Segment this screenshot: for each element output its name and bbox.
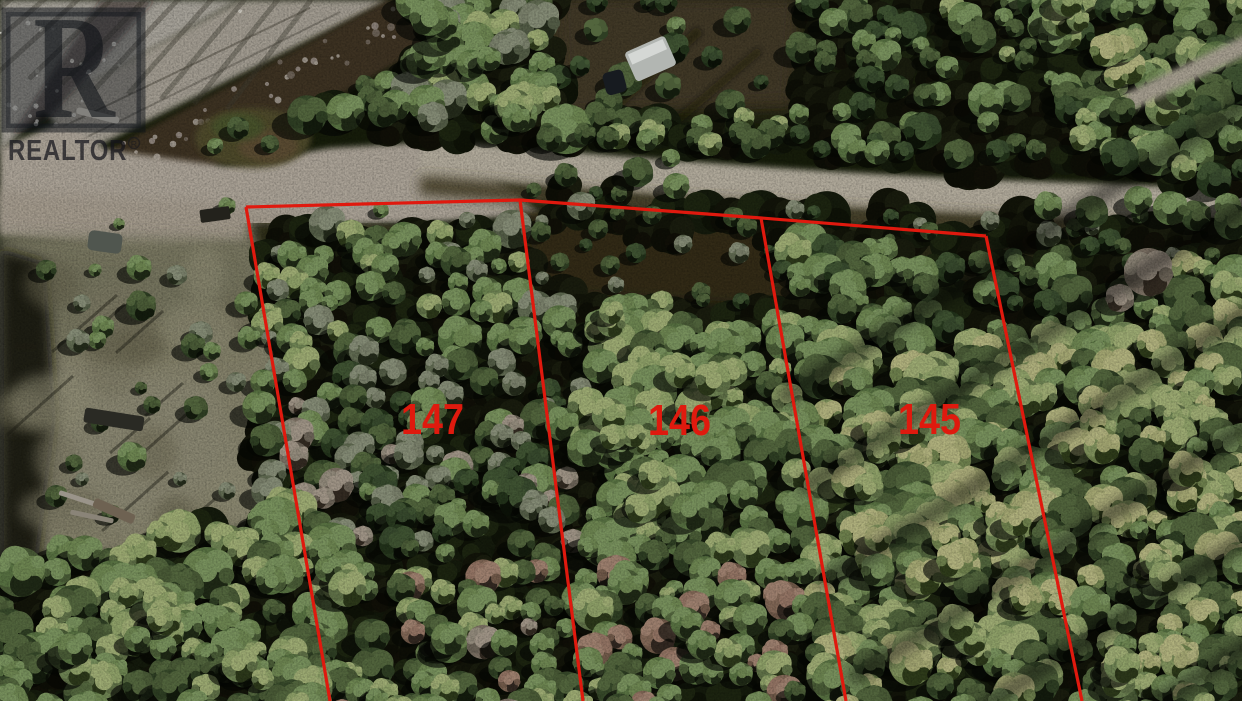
svg-text:145: 145 (898, 395, 961, 444)
svg-text:REALTOR: REALTOR (8, 134, 127, 166)
svg-text:R: R (33, 0, 116, 150)
svg-text:R: R (131, 139, 137, 149)
svg-text:146: 146 (648, 396, 711, 445)
svg-text:147: 147 (401, 395, 464, 444)
